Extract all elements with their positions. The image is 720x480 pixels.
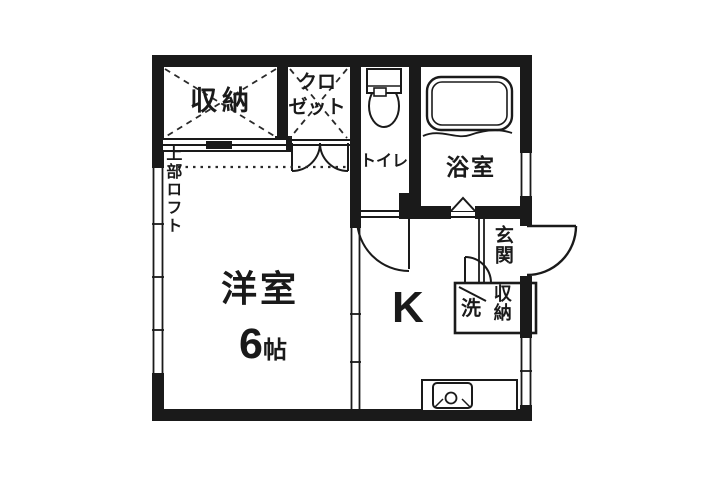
- room-label-entrance: 玄関: [491, 225, 513, 265]
- floor-plan-drawing: [0, 0, 720, 480]
- sink-icon: [422, 380, 517, 411]
- room-label-toilet: トイレ: [358, 153, 410, 171]
- window-kitchen: [520, 338, 532, 405]
- bathtub-icon: [423, 77, 512, 136]
- loft-note: 上部ロフト: [162, 145, 180, 235]
- room-size-number: 6: [239, 320, 263, 368]
- room-label-entrance-storage: 収納: [491, 284, 512, 322]
- storage-sliding-door: [162, 139, 287, 151]
- toilet-door: [357, 211, 409, 271]
- wall-right-d: [520, 405, 532, 421]
- room-label-storage: 収納: [186, 86, 258, 117]
- closet-double-door: [287, 140, 350, 171]
- window-bathroom: [522, 152, 531, 196]
- floor-plan: 収納 クロ ゼット トイレ 浴室 上部ロフト 洋室 6帖 K 玄関 洗 収納: [0, 0, 720, 480]
- wall-bath-bottom-left: [421, 206, 451, 219]
- room-label-closet: クロ ゼット: [283, 70, 351, 120]
- room-label-bathroom: 浴室: [428, 154, 514, 180]
- western-room-size: 6帖: [183, 320, 343, 369]
- entrance-storage-door: [465, 257, 491, 283]
- room-label-western-room: 洋室: [183, 268, 337, 309]
- entrance-door: [527, 226, 576, 275]
- room-size-unit: 帖: [263, 337, 287, 364]
- room-label-kitchen: K: [392, 283, 424, 334]
- wall-toilet-door-post: [399, 193, 421, 219]
- closet-label-line2: ゼット: [283, 95, 351, 120]
- closet-label-line1: クロ: [283, 70, 351, 95]
- wall-toilet-bath-divider: [409, 63, 421, 193]
- bathroom-folding-door: [451, 198, 475, 217]
- sliding-partition-room-kitchen: [350, 228, 361, 409]
- room-label-laundry: 洗: [461, 298, 481, 321]
- wall-top: [152, 55, 532, 67]
- wall-room-divider: [350, 63, 361, 228]
- entrance-step-line: [479, 219, 484, 284]
- wall-bath-bottom-right: [475, 206, 521, 219]
- wall-right-c: [520, 276, 532, 338]
- toilet-icon: [367, 69, 401, 127]
- wall-right-a: [520, 55, 532, 153]
- wall-right-b: [520, 196, 532, 226]
